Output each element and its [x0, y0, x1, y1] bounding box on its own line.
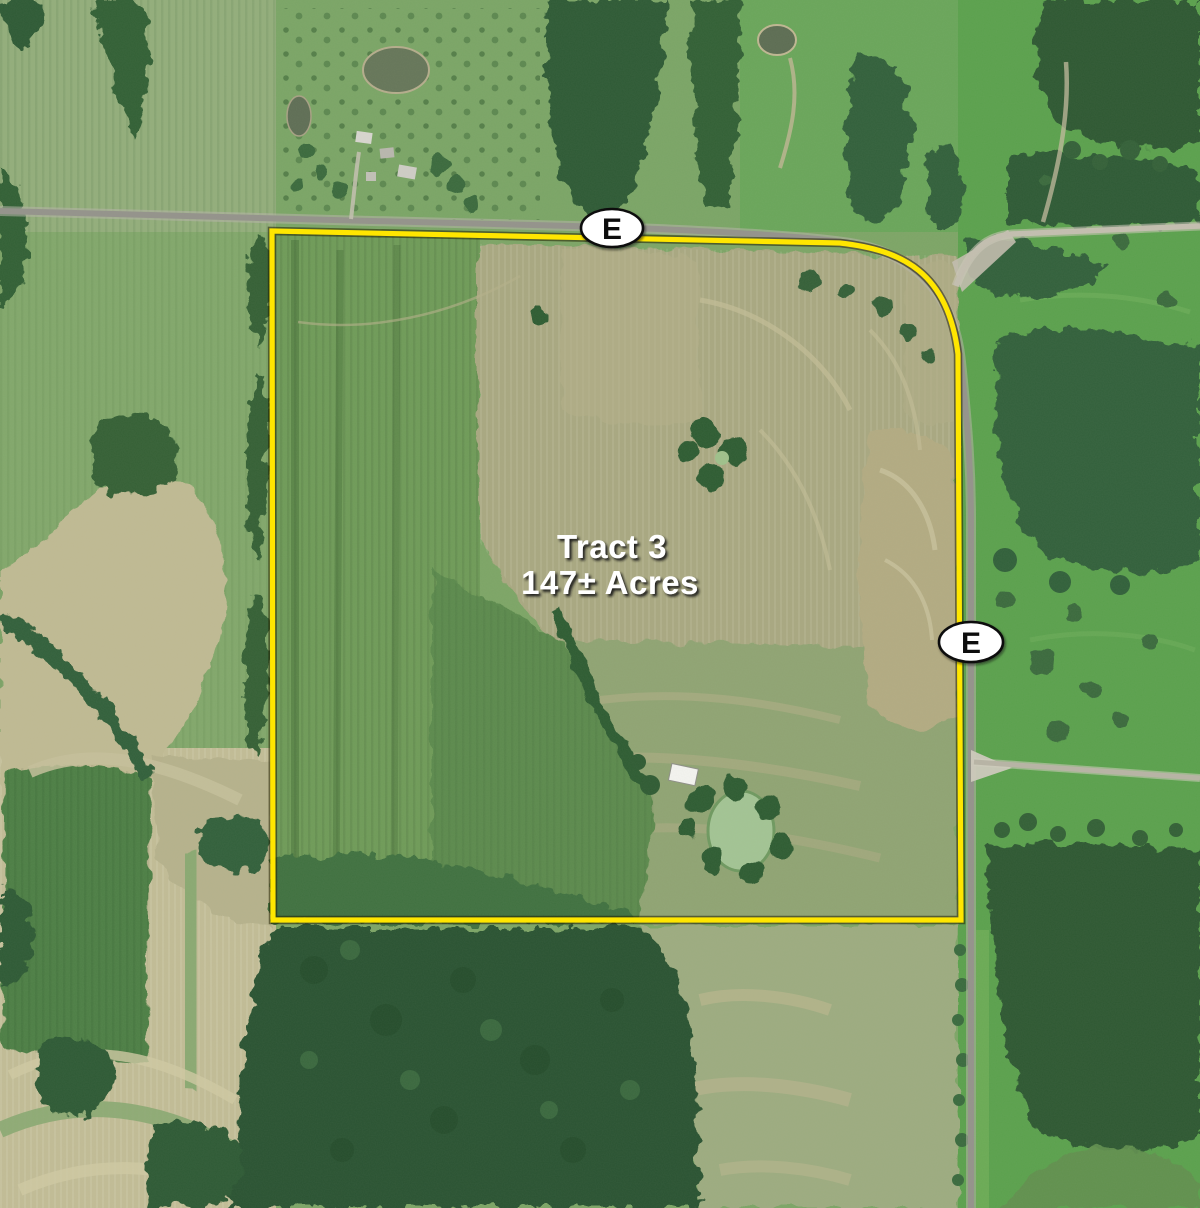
road-marker-top-label: E	[602, 213, 622, 246]
road-marker-east-label: E	[961, 627, 981, 660]
acreage-label: 147± Acres	[521, 564, 699, 601]
aerial-map: E E Tract 3 147± Acres	[0, 0, 1200, 1208]
tract-label: Tract 3	[557, 528, 667, 565]
aerial-map-canvas: E E Tract 3 147± Acres	[0, 0, 1200, 1208]
road-marker-top: E	[581, 209, 643, 247]
photo-grain-overlay	[0, 0, 1200, 1208]
road-marker-east: E	[939, 622, 1003, 662]
